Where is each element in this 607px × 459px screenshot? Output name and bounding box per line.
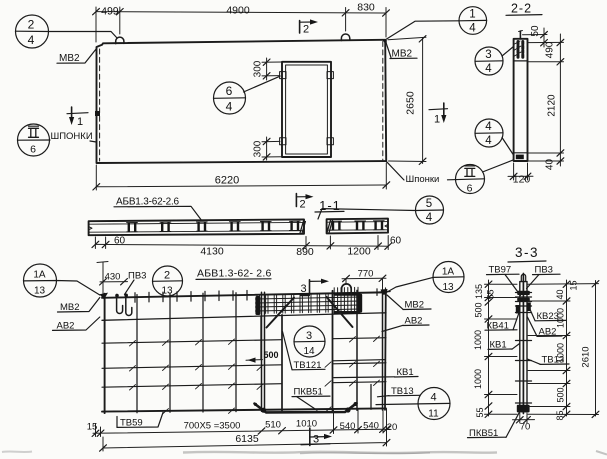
svg-text:1000: 1000 xyxy=(473,369,483,389)
svg-text:2610: 2610 xyxy=(581,346,592,367)
svg-text:500: 500 xyxy=(474,302,484,317)
svg-text:3: 3 xyxy=(306,330,312,342)
svg-text:2: 2 xyxy=(164,270,170,282)
svg-text:2: 2 xyxy=(28,18,35,32)
svg-text:6: 6 xyxy=(467,183,473,195)
svg-text:700Х5 =3500: 700Х5 =3500 xyxy=(184,421,241,432)
svg-text:11: 11 xyxy=(428,409,439,420)
svg-text:890: 890 xyxy=(296,246,314,258)
svg-text:ШПОНКИ: ШПОНКИ xyxy=(51,131,93,142)
svg-text:1200: 1200 xyxy=(347,246,371,258)
svg-text:6220: 6220 xyxy=(215,175,239,187)
svg-text:500: 500 xyxy=(263,350,278,360)
svg-text:Шпонки: Шпонки xyxy=(406,174,440,185)
svg-text:1000: 1000 xyxy=(556,308,566,328)
svg-text:4: 4 xyxy=(430,392,436,404)
svg-text:540: 540 xyxy=(363,421,379,432)
svg-text:4: 4 xyxy=(469,23,476,35)
svg-text:830: 830 xyxy=(357,2,375,14)
svg-text:55: 55 xyxy=(486,289,496,299)
svg-text:1: 1 xyxy=(77,116,83,128)
svg-text:1000: 1000 xyxy=(556,343,566,363)
svg-text:2650: 2650 xyxy=(405,91,417,115)
svg-text:770: 770 xyxy=(358,269,374,280)
svg-text:430: 430 xyxy=(105,272,121,283)
svg-text:1А: 1А xyxy=(33,270,46,281)
svg-text:55: 55 xyxy=(475,407,485,417)
svg-text:4900: 4900 xyxy=(226,5,250,17)
svg-text:3-3: 3-3 xyxy=(515,245,539,260)
svg-text:135: 135 xyxy=(474,284,484,299)
svg-text:4: 4 xyxy=(485,121,492,133)
svg-text:15: 15 xyxy=(569,280,579,290)
svg-text:6135: 6135 xyxy=(235,433,259,445)
svg-text:85: 85 xyxy=(555,410,565,420)
svg-text:14: 14 xyxy=(303,346,315,357)
svg-text:6: 6 xyxy=(30,144,36,156)
svg-text:4: 4 xyxy=(28,33,35,47)
svg-text:490: 490 xyxy=(544,41,555,58)
svg-text:20: 20 xyxy=(387,422,398,433)
svg-text:70: 70 xyxy=(520,422,531,433)
svg-text:1010: 1010 xyxy=(296,419,317,430)
svg-text:500: 500 xyxy=(556,387,566,402)
svg-text:1: 1 xyxy=(469,9,475,21)
svg-text:6: 6 xyxy=(226,84,233,98)
svg-text:2120: 2120 xyxy=(547,94,558,117)
svg-text:1000: 1000 xyxy=(473,330,483,350)
svg-text:13: 13 xyxy=(34,286,46,297)
svg-text:3: 3 xyxy=(313,434,319,446)
svg-text:13: 13 xyxy=(442,282,454,293)
svg-text:40: 40 xyxy=(555,289,565,299)
svg-text:3: 3 xyxy=(301,283,307,295)
svg-text:4130: 4130 xyxy=(200,246,224,258)
svg-text:4: 4 xyxy=(226,100,233,114)
svg-text:МВ2: МВ2 xyxy=(59,53,80,64)
svg-text:3: 3 xyxy=(485,49,491,61)
svg-text:60: 60 xyxy=(390,236,402,247)
svg-text:40: 40 xyxy=(544,159,555,171)
svg-text:499: 499 xyxy=(101,5,119,17)
svg-text:4: 4 xyxy=(426,212,433,224)
svg-text:5: 5 xyxy=(426,198,432,210)
svg-text:АБВ1.3-62- 2.6: АБВ1.3-62- 2.6 xyxy=(197,268,271,280)
svg-text:1А: 1А xyxy=(442,267,455,278)
svg-text:4: 4 xyxy=(485,63,492,75)
svg-text:4: 4 xyxy=(485,135,492,147)
svg-text:300: 300 xyxy=(253,60,264,77)
svg-text:15: 15 xyxy=(87,422,98,433)
svg-text:2: 2 xyxy=(300,199,306,211)
svg-text:1-1: 1-1 xyxy=(319,198,341,213)
svg-text:510: 510 xyxy=(265,420,281,431)
svg-text:ПВ3: ПВ3 xyxy=(128,271,146,282)
svg-text:50: 50 xyxy=(530,25,541,37)
svg-text:300: 300 xyxy=(253,140,264,157)
svg-text:2: 2 xyxy=(303,24,309,36)
svg-text:2-2: 2-2 xyxy=(511,2,532,16)
svg-text:13: 13 xyxy=(161,286,173,297)
svg-text:120: 120 xyxy=(513,174,531,186)
svg-text:1: 1 xyxy=(434,114,440,126)
svg-text:540: 540 xyxy=(340,421,356,432)
svg-text:60: 60 xyxy=(114,236,126,247)
